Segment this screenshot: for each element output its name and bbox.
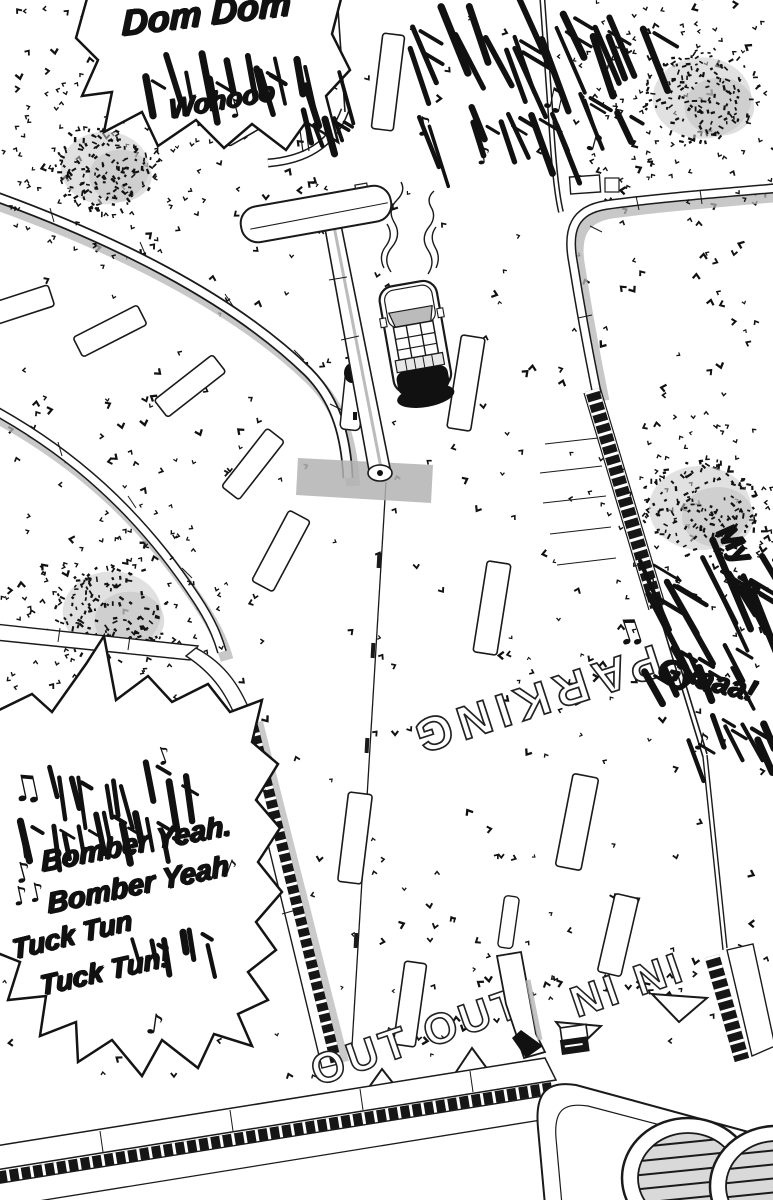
gate-median bbox=[497, 895, 545, 1058]
bottom-walls bbox=[0, 1058, 566, 1200]
right-island-curb bbox=[569, 175, 773, 401]
sfx-kana-melody-b bbox=[419, 94, 642, 186]
median-dashes bbox=[354, 553, 382, 948]
entrance-right-wall bbox=[712, 944, 773, 1060]
lamp-shadow bbox=[296, 458, 433, 503]
rooftop bbox=[537, 1084, 773, 1200]
road-markings: PARKING OUT OUT IN IN bbox=[305, 635, 707, 1097]
ticket-machine bbox=[558, 1024, 589, 1055]
parking-road-text: PARKING bbox=[402, 635, 668, 766]
lamp-head bbox=[238, 183, 394, 245]
manga-page: PARKING OUT OUT IN IN bbox=[0, 0, 773, 1200]
sfx-kana-beat-c bbox=[689, 716, 773, 781]
aerial-scene: PARKING OUT OUT IN IN bbox=[0, 0, 773, 1200]
sfx-kana-beat-a bbox=[640, 540, 773, 668]
car bbox=[374, 278, 459, 412]
island-sign bbox=[569, 175, 600, 194]
